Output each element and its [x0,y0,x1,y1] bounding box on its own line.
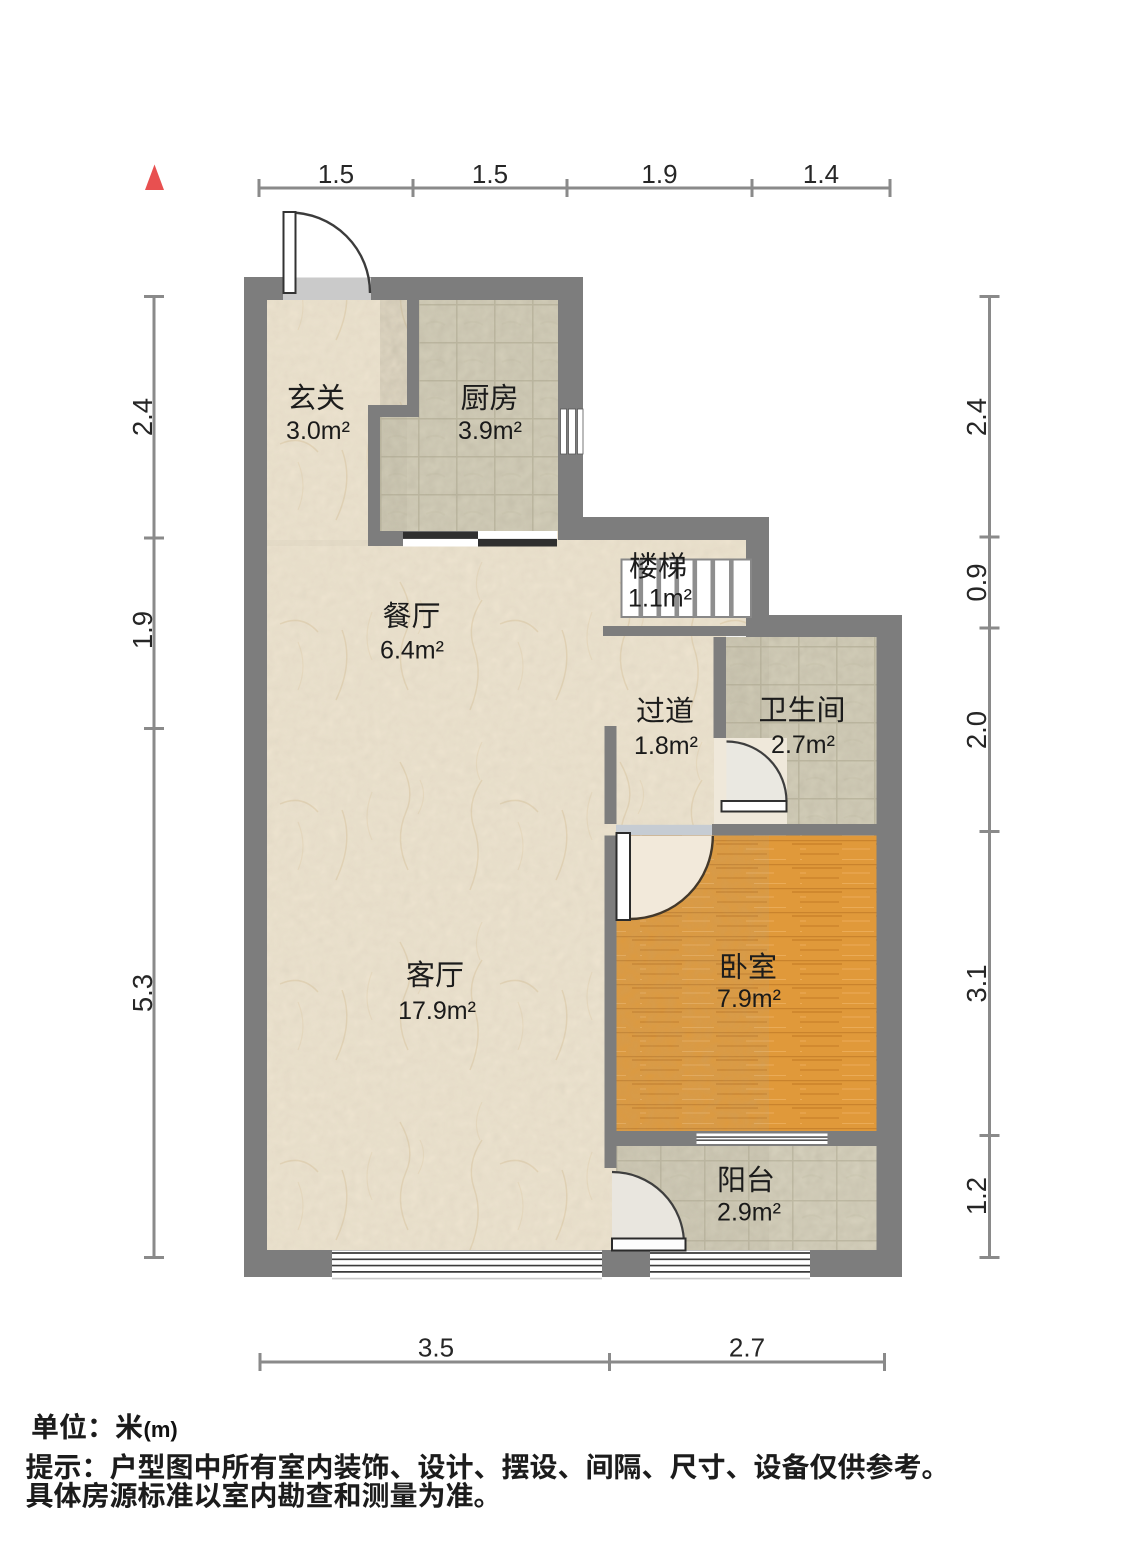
svg-text:2.7m²: 2.7m² [771,731,835,759]
svg-text:3.1: 3.1 [961,964,992,1002]
svg-text:1.1m²: 1.1m² [628,585,692,613]
svg-text:17.9m²: 17.9m² [398,997,476,1025]
svg-text:3.9m²: 3.9m² [458,417,522,445]
svg-text:1.9: 1.9 [127,611,158,649]
svg-text:0.9: 0.9 [961,563,992,601]
svg-text:2.9m²: 2.9m² [717,1199,781,1227]
svg-text:1.4: 1.4 [803,159,839,189]
svg-text:1.8m²: 1.8m² [634,732,698,760]
svg-text:5.3: 5.3 [127,974,158,1012]
svg-text:2.7: 2.7 [729,1333,765,1363]
svg-text:(m): (m) [144,1417,178,1442]
svg-text:1.2: 1.2 [961,1177,992,1215]
svg-text:1.5: 1.5 [472,159,508,189]
svg-text:6.4m²: 6.4m² [380,637,444,665]
svg-text:3.0m²: 3.0m² [286,417,350,445]
svg-text:7.9m²: 7.9m² [717,985,781,1013]
svg-text:3.5: 3.5 [418,1333,454,1363]
svg-text:1.9: 1.9 [641,159,677,189]
svg-text:1.5: 1.5 [318,159,354,189]
svg-text:2.4: 2.4 [127,398,158,436]
svg-text:2.4: 2.4 [961,398,992,436]
svg-text:2.0: 2.0 [961,711,992,749]
